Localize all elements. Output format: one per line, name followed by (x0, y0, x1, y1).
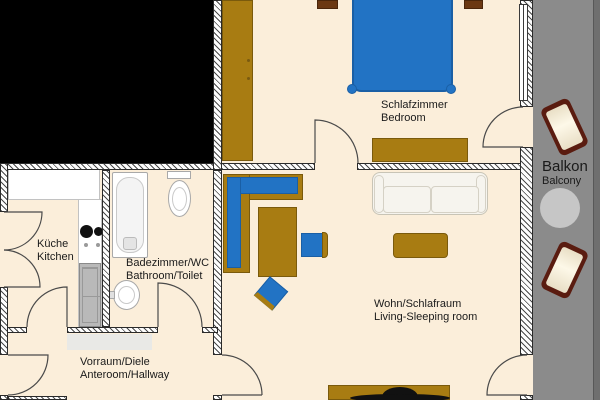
wall-balcony-mid (520, 147, 533, 355)
refrigerator (79, 263, 101, 327)
bathroom-label: Badezimmer/WC Bathroom/Toilet (126, 257, 209, 283)
bedroom-dresser (372, 138, 468, 162)
chair-2 (254, 276, 288, 311)
dining-table (258, 207, 297, 277)
door-bathroom-hallway (158, 283, 202, 327)
living-label-de: Wohn/Schlafraum (374, 298, 477, 311)
bathtub-faucet (123, 237, 137, 250)
bedroom-label-en: Bedroom (381, 112, 448, 125)
wall-kitchen-bathroom (102, 170, 110, 327)
hallway-label-de: Vorraum/Diele (80, 356, 169, 369)
balcony-railing (593, 0, 600, 400)
tv-stand (350, 394, 450, 400)
hallway-label: Vorraum/Diele Anteroom/Hallway (80, 356, 169, 382)
wall-hallway-bottom (8, 396, 67, 400)
wardrobe-handle (247, 77, 250, 80)
wall-kb-bottom-2 (67, 327, 158, 333)
balcony-label: Balkon Balcony (542, 158, 588, 188)
wall-balcony-upper (520, 0, 533, 107)
floor-plan: Schlafzimmer Bedroom Küche Kitchen Badez… (0, 0, 600, 400)
bedroom-label: Schlafzimmer Bedroom (381, 99, 448, 125)
balcony-round-table (540, 188, 580, 228)
kitchen-label-de: Küche (37, 238, 74, 251)
door-entrance (8, 355, 48, 395)
refrigerator-door (82, 267, 98, 323)
refrigerator-divider (82, 296, 100, 297)
wall-main-vertical-stub (213, 395, 222, 400)
double-bed (352, 0, 453, 92)
sofa-cushion (383, 186, 431, 213)
balcony-label-en: Balcony (542, 175, 588, 188)
nightstand-left (317, 0, 338, 9)
hallway-mat (67, 334, 152, 350)
toilet-bowl-inner (172, 187, 187, 211)
door-bedroom-balcony (483, 107, 523, 147)
door-hallway-living (222, 355, 262, 395)
bathroom-label-en: Bathroom/Toilet (126, 270, 209, 283)
wall-main-vertical-upper (213, 0, 222, 170)
wall-balcony-stub (520, 395, 533, 400)
bathroom-sink (113, 280, 140, 310)
kitchen-counter-top (8, 169, 100, 200)
kitchen-label: Küche Kitchen (37, 238, 74, 264)
wardrobe-handle (247, 59, 250, 62)
toilet-bowl (168, 180, 191, 217)
stove-knob (96, 243, 100, 247)
bathtub (112, 172, 148, 258)
stove-burner-large (80, 225, 93, 238)
wall-main-horizontal-west (0, 163, 315, 170)
balcony-label-de: Balkon (542, 158, 588, 175)
wall-exterior-left-1 (0, 163, 8, 212)
outside-area (0, 0, 213, 163)
wall-kb-bottom-3 (202, 327, 218, 333)
stove-knob (84, 243, 88, 247)
wall-exterior-left-2 (0, 287, 8, 355)
bedroom-wardrobe (222, 0, 253, 161)
hallway-label-en: Anteroom/Hallway (80, 369, 169, 382)
bedpost-right (446, 84, 456, 94)
toilet-tank (167, 171, 191, 179)
white-sofa (372, 172, 488, 215)
coffee-table (393, 233, 448, 258)
bedpost-left (347, 84, 357, 94)
nightstand-right (464, 0, 483, 9)
door-kitchen-double-lower (4, 250, 40, 287)
chair-1-backrest (322, 232, 328, 258)
kitchen-label-en: Kitchen (37, 251, 74, 264)
bedroom-label-de: Schlafzimmer (381, 99, 448, 112)
wall-main-horizontal-east (357, 163, 533, 170)
bathroom-label-de: Badezimmer/WC (126, 257, 209, 270)
sofa-cushion (431, 186, 479, 213)
door-kitchen-hallway (27, 287, 67, 327)
chair-1 (301, 233, 324, 257)
living-label: Wohn/Schlafraum Living-Sleeping room (374, 298, 477, 324)
living-label-en: Living-Sleeping room (374, 311, 477, 324)
door-living-balcony (487, 355, 527, 395)
sink-basin (118, 286, 135, 304)
wall-exterior-left-3 (0, 395, 8, 400)
door-bedroom-living (315, 120, 358, 163)
corner-bench-seat-left (227, 177, 241, 268)
